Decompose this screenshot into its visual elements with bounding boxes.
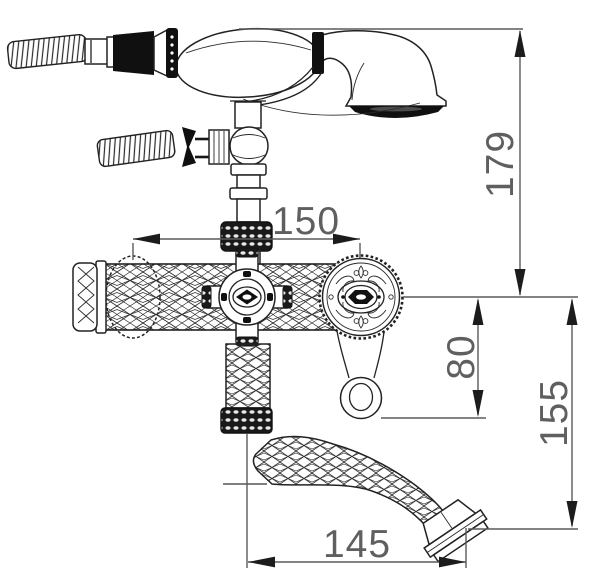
wheel-handle: [320, 256, 403, 339]
technical-drawing-canvas: 179 150 80 155 145: [0, 0, 600, 581]
down-pipe: [226, 344, 270, 408]
handheld-shower-assembly: [7, 24, 446, 128]
wall-hose: [97, 130, 176, 167]
wall-union-assembly: [97, 127, 229, 167]
dim-label-155: 155: [533, 379, 576, 447]
spout-tube: [254, 437, 443, 525]
shower-head-bell: [322, 31, 446, 106]
handset-handle: [174, 24, 322, 102]
diverter-cross-handle: [202, 248, 292, 346]
dimension-155: 155: [468, 298, 578, 529]
head-collar: [312, 32, 324, 74]
wheel-lever: [337, 331, 384, 419]
wall-flange: [182, 127, 196, 167]
dim-label-150: 150: [272, 200, 340, 243]
dim-label-145: 145: [323, 523, 391, 566]
knurled-nut: [221, 222, 272, 251]
dim-label-80: 80: [440, 334, 483, 379]
hose-step: [107, 37, 114, 67]
shower-hose: [7, 34, 88, 69]
ball-joint: [230, 127, 268, 165]
dim-label-179: 179: [479, 130, 522, 198]
cradle-post: [235, 102, 261, 128]
technical-drawing-page: 179 150 80 155 145: [0, 0, 600, 581]
shower-grip: [113, 31, 154, 75]
spout-collar: [221, 408, 272, 433]
grip-cone: [154, 30, 167, 76]
